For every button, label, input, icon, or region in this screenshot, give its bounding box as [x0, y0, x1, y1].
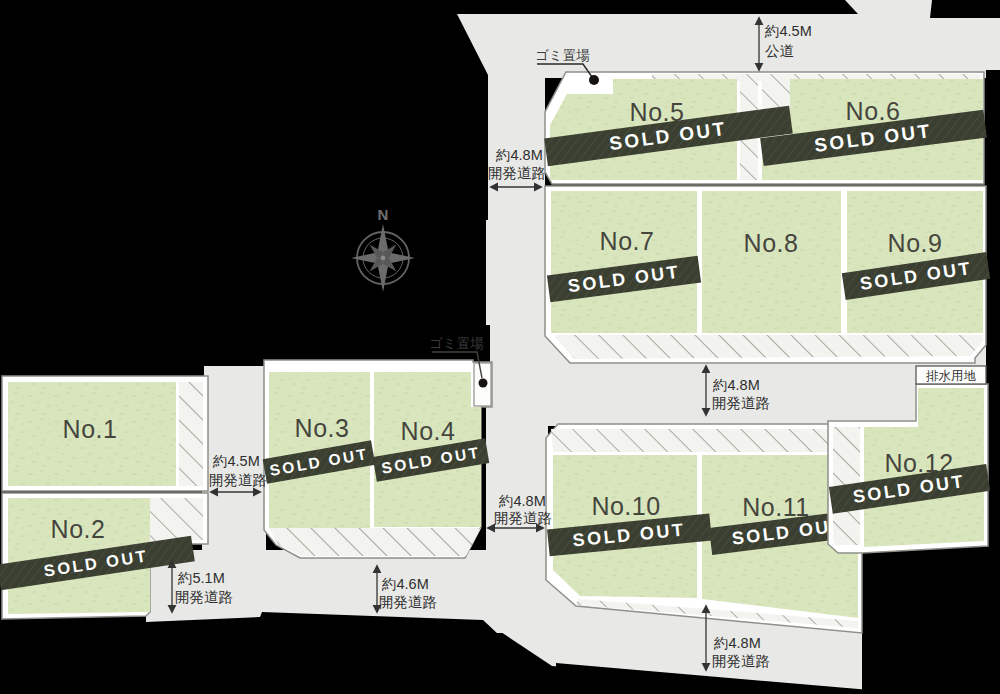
row-top-hatch — [551, 429, 858, 452]
garbage-top-label: ゴミ置場 — [535, 48, 590, 63]
garbage-mid-label: ゴミ置場 — [429, 336, 484, 351]
lot-number: No.9 — [888, 229, 943, 257]
svg-text:開発道路: 開発道路 — [209, 472, 267, 488]
svg-text:開発道路: 開発道路 — [494, 510, 552, 526]
svg-text:公道: 公道 — [765, 43, 794, 59]
lot-hatch — [179, 382, 203, 486]
garbage-dot-top — [589, 75, 599, 85]
lot-hatch-bottom — [555, 335, 983, 359]
svg-text:開発道路: 開発道路 — [712, 653, 770, 669]
svg-text:約4.5M: 約4.5M — [212, 453, 260, 469]
road-label-center: 約4.8M 開発道路 — [494, 493, 552, 526]
svg-text:開発道路: 開発道路 — [175, 589, 233, 605]
mask-top-strip — [452, 0, 858, 14]
mask-left — [0, 0, 488, 366]
svg-text:約4.8M: 約4.8M — [495, 147, 543, 163]
lot-green-8 — [702, 191, 841, 333]
lot-number: No.2 — [51, 515, 106, 543]
lot-number: No.4 — [401, 417, 456, 445]
lot-no10-no11: No.10 No.11 SOLD OUT SOLD OUT — [546, 424, 868, 633]
drainage-label: 排水用地 — [926, 369, 977, 383]
svg-text:約5.1M: 約5.1M — [177, 570, 225, 586]
lot-number: No.3 — [295, 414, 350, 442]
svg-text:約4.6M: 約4.6M — [381, 576, 429, 592]
lot-hatch — [269, 528, 481, 556]
lot-number: No.6 — [846, 97, 901, 125]
mask-top-right — [930, 0, 1000, 18]
north-label: N — [378, 206, 389, 223]
lot-number: No.8 — [744, 229, 799, 257]
lot-no7-no8-no9: No.7 No.8 No.9 SOLD OUT SOLD OUT — [545, 186, 990, 363]
garbage-dot-mid — [479, 379, 488, 388]
svg-text:開発道路: 開発道路 — [488, 165, 546, 181]
svg-text:約4.8M: 約4.8M — [498, 493, 546, 509]
site-plan-svg: No.1 No.2 SOLD OUT No.3 No.4 SOLD OUT SO… — [0, 0, 1000, 694]
svg-text:約4.8M: 約4.8M — [712, 377, 760, 393]
svg-text:開発道路: 開発道路 — [379, 594, 437, 610]
svg-text:開発道路: 開発道路 — [712, 395, 770, 411]
svg-text:約4.8M: 約4.8M — [713, 635, 761, 651]
lot-number: No.11 — [742, 493, 809, 521]
mask-bottom-right — [862, 560, 1000, 694]
site-plan-map: No.1 No.2 SOLD OUT No.3 No.4 SOLD OUT SO… — [0, 0, 1000, 694]
lot-no3-no4: No.3 No.4 SOLD OUT SOLD OUT — [263, 360, 492, 558]
lot-no5-no6: No.5 No.6 SOLD OUT SOLD OUT — [544, 72, 987, 184]
lot-number: No.10 — [591, 492, 660, 520]
lot-number: No.1 — [63, 415, 118, 443]
svg-text:約4.5M: 約4.5M — [764, 23, 812, 39]
lot-number: No.7 — [600, 227, 655, 255]
lot-no1: No.1 — [2, 376, 208, 491]
